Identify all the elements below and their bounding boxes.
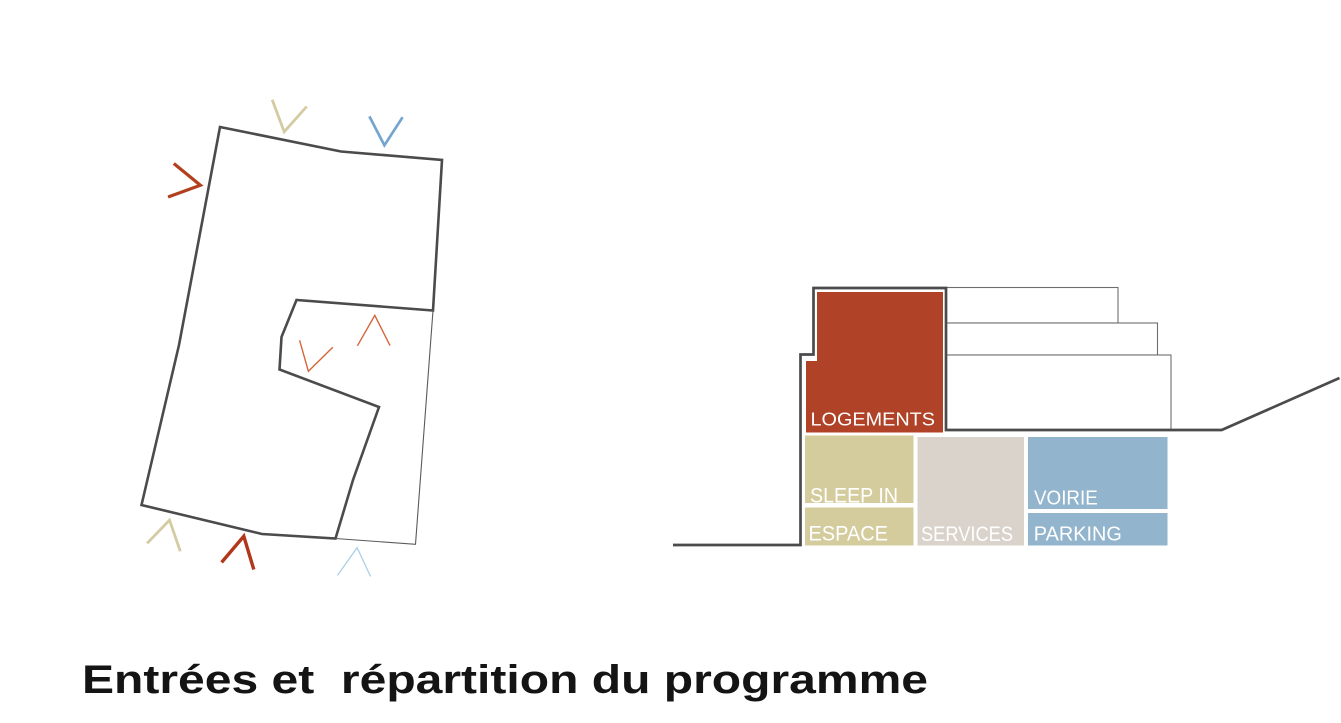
- svg-text:SLEEP IN: SLEEP IN: [810, 485, 898, 508]
- svg-text:VOIRIE: VOIRIE: [1034, 486, 1098, 509]
- svg-text:SERVICES: SERVICES: [921, 523, 1013, 546]
- svg-text:LOGEMENTS: LOGEMENTS: [811, 409, 936, 430]
- svg-text:ESPACE: ESPACE: [809, 523, 889, 546]
- svg-text:PARKING: PARKING: [1034, 522, 1122, 545]
- svg-text:Entrées et répartition du pro: Entrées et répartition du programme: [82, 658, 928, 702]
